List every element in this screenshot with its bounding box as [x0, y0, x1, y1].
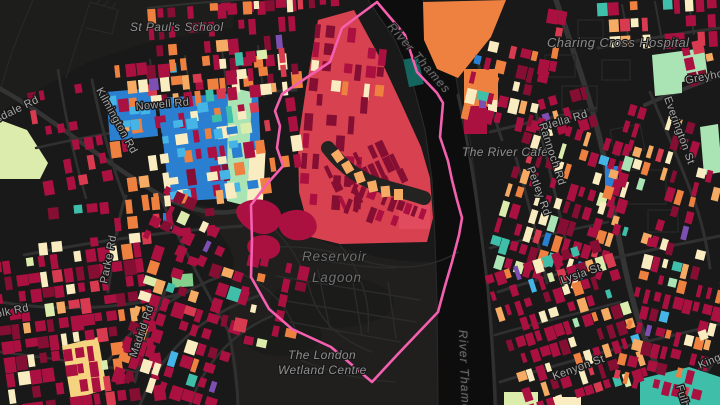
map-canvas[interactable]: St Paul's School Charing Cross Hospital … — [0, 0, 720, 405]
label-river-cafe: The River Café — [462, 145, 548, 159]
label-reservoir-line1: Reservoir — [302, 249, 367, 264]
label-reservoir-line2: Lagoon — [312, 270, 362, 285]
label-river-thames-right: River Thames — [456, 330, 473, 405]
label-wetland-line1: The London — [288, 348, 356, 362]
label-charing-cross-hospital: Charing Cross Hospital — [547, 35, 690, 50]
label-st-pauls-school: St Paul's School — [130, 20, 223, 34]
map-viewport: St Paul's School Charing Cross Hospital … — [0, 0, 720, 405]
label-wetland-line2: Wetland Centre — [278, 363, 367, 377]
